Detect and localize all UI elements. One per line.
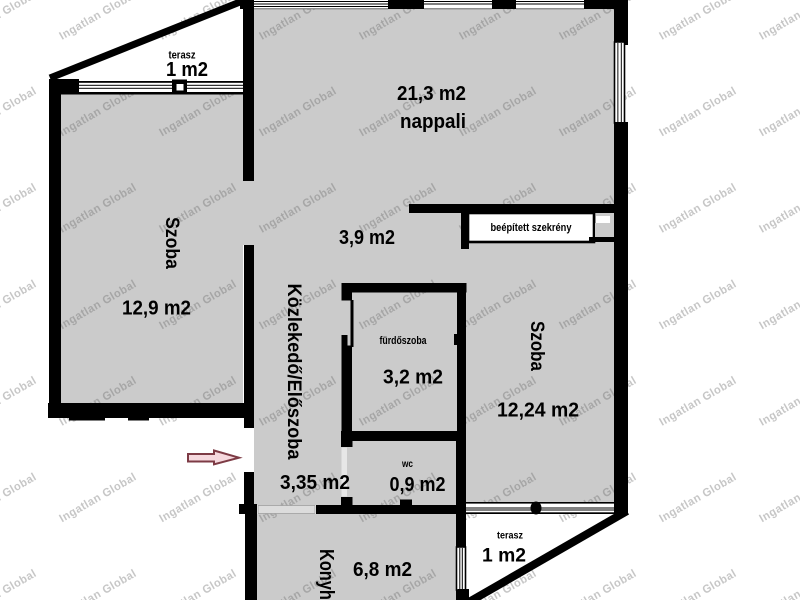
svg-text:Konyha: Konyha xyxy=(315,549,337,600)
svg-text:12,9 m2: 12,9 m2 xyxy=(122,298,191,320)
svg-text:12,24 m2: 12,24 m2 xyxy=(497,400,579,422)
svg-text:nappali: nappali xyxy=(400,111,466,133)
svg-text:0,9 m2: 0,9 m2 xyxy=(390,474,446,496)
svg-text:Közlekedő/Előszoba: Közlekedő/Előszoba xyxy=(283,284,304,460)
svg-text:6,8 m2: 6,8 m2 xyxy=(353,559,412,581)
svg-text:3,2 m2: 3,2 m2 xyxy=(383,367,443,389)
svg-text:Szoba: Szoba xyxy=(526,321,547,371)
svg-text:Szoba: Szoba xyxy=(161,217,182,269)
svg-text:wc: wc xyxy=(401,459,413,470)
svg-text:beépített szekrény: beépített szekrény xyxy=(491,222,573,234)
svg-text:terasz: terasz xyxy=(497,531,523,542)
svg-text:1 m2: 1 m2 xyxy=(166,59,208,81)
svg-text:1 m2: 1 m2 xyxy=(482,546,526,567)
svg-text:21,3 m2: 21,3 m2 xyxy=(397,83,466,105)
svg-text:3,9 m2: 3,9 m2 xyxy=(339,227,395,249)
svg-text:fürdőszoba: fürdőszoba xyxy=(380,335,428,347)
svg-text:3,35 m2: 3,35 m2 xyxy=(280,472,350,494)
